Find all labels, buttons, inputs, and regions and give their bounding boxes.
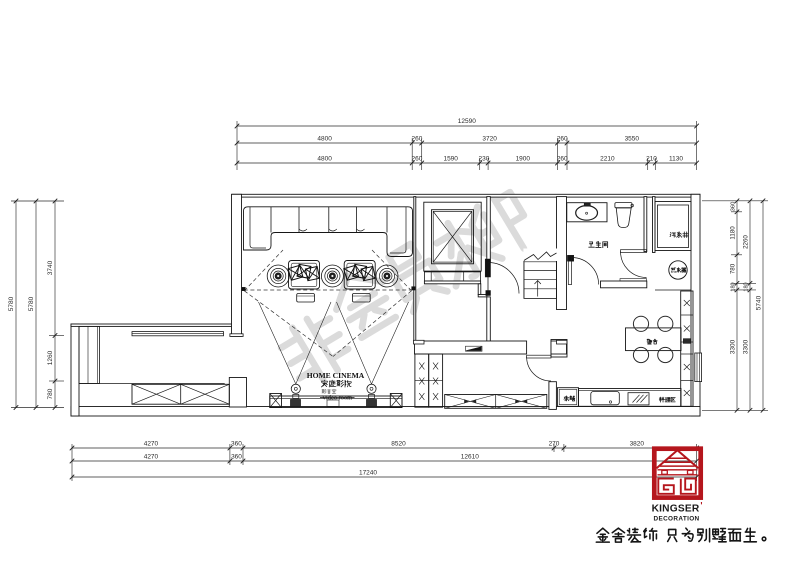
svg-text:1130: 1130 [669,155,683,162]
svg-text:360: 360 [731,202,737,212]
svg-text:5780: 5780 [28,296,35,311]
svg-text:5740: 5740 [756,295,763,310]
svg-text:360: 360 [231,453,242,460]
svg-text:3740: 3740 [47,260,54,275]
svg-text:KINGSER: KINGSER [652,504,700,515]
svg-text:17240: 17240 [359,469,377,476]
svg-text:2260: 2260 [743,235,750,249]
svg-text:5780: 5780 [8,296,15,311]
svg-text:260: 260 [557,135,568,142]
svg-text:360: 360 [231,440,242,447]
svg-text:230: 230 [478,155,489,162]
svg-text:1590: 1590 [443,155,458,162]
svg-text:12590: 12590 [458,118,476,125]
svg-text:1260: 1260 [47,350,54,365]
svg-text:8520: 8520 [391,440,406,447]
svg-text:3300: 3300 [730,339,737,354]
svg-text:4800: 4800 [317,135,332,142]
svg-text:270: 270 [549,440,560,447]
svg-text:3720: 3720 [482,135,497,142]
svg-text:1180: 1180 [730,226,737,240]
svg-text:12610: 12610 [461,453,479,460]
svg-text:4270: 4270 [144,440,159,447]
svg-text:3820: 3820 [630,440,645,447]
svg-text:180: 180 [744,282,750,291]
svg-text:180: 180 [731,282,737,291]
svg-text:4270: 4270 [144,453,159,460]
svg-text:3550: 3550 [625,135,640,142]
svg-text:210: 210 [646,155,657,162]
svg-text:780: 780 [47,388,54,399]
svg-text:3300: 3300 [743,339,750,354]
svg-text:DECORATION: DECORATION [654,516,700,523]
svg-text:HOME CINEMA: HOME CINEMA [307,371,365,380]
svg-text:260: 260 [412,135,423,142]
svg-text:....: .... [348,395,352,400]
svg-text:1900: 1900 [516,155,531,162]
svg-text:260: 260 [557,155,568,162]
svg-text:260: 260 [412,155,423,162]
svg-text:780: 780 [730,263,737,274]
svg-text:': ' [700,501,702,511]
svg-text:4800: 4800 [317,155,332,162]
svg-text:2210: 2210 [600,155,615,162]
